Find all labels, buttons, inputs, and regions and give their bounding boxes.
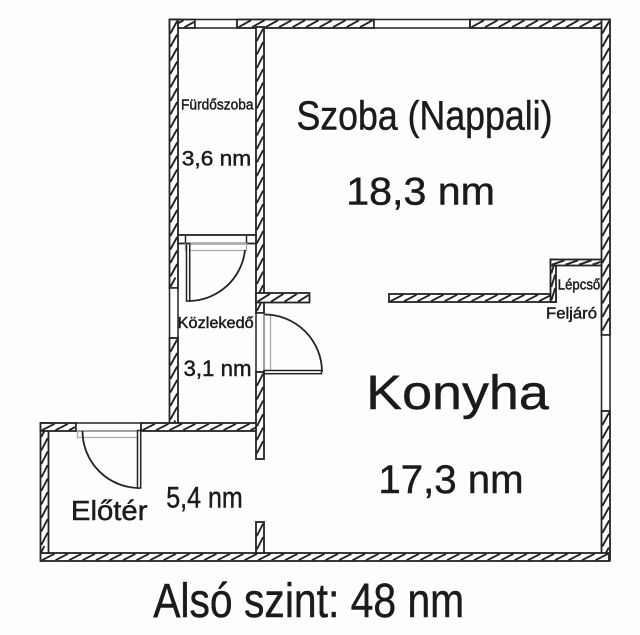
- svg-text:Előtér: Előtér: [71, 495, 148, 526]
- svg-text:3,1 nm: 3,1 nm: [184, 356, 252, 381]
- svg-text:Alsó szint: 48 nm: Alsó szint: 48 nm: [153, 575, 464, 628]
- svg-text:Konyha: Konyha: [366, 367, 549, 420]
- svg-text:17,3 nm: 17,3 nm: [378, 458, 523, 502]
- svg-text:Szoba (Nappali): Szoba (Nappali): [297, 92, 553, 138]
- svg-text:5,4 nm: 5,4 nm: [166, 482, 243, 515]
- svg-text:Fürdőszoba: Fürdőszoba: [181, 97, 254, 114]
- svg-text:18,3 nm: 18,3 nm: [346, 171, 495, 214]
- svg-text:Feljáró: Feljáró: [546, 306, 597, 323]
- svg-text:Lépcső: Lépcső: [558, 277, 601, 294]
- svg-text:Közlekedő: Közlekedő: [178, 315, 254, 332]
- svg-text:3,6 nm: 3,6 nm: [182, 147, 252, 171]
